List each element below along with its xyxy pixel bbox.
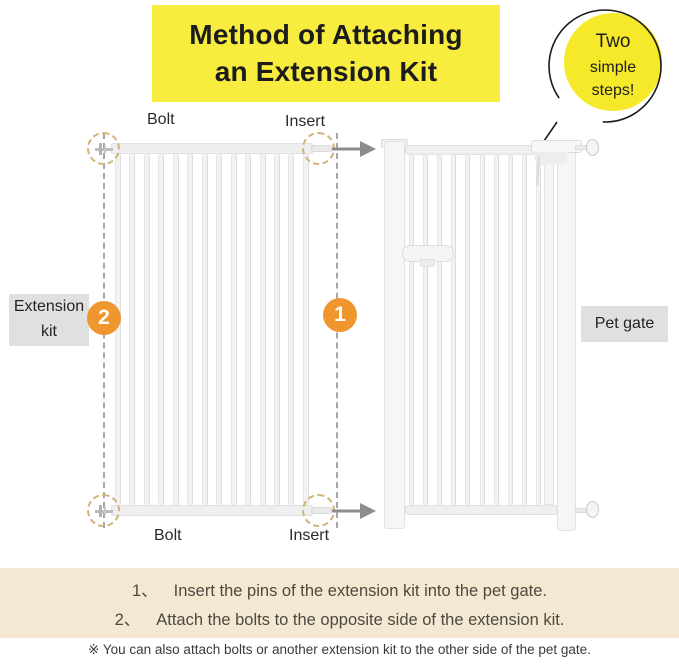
bottom-insert-arrow-icon [332,503,376,519]
page-title: Method of Attaching an Extension Kit [152,5,500,102]
extension-kit-bottom-rail [111,505,313,516]
extension-kit-top-rail [111,143,313,154]
bubble-line-3: steps! [592,79,635,102]
step-1-badge: 1 [323,298,357,332]
bottom-pressure-knob [586,501,599,518]
speech-bubble-text: Two simple steps! [557,14,669,116]
step-2-number: 2、 [115,606,141,630]
top-insert-highlight-circle [302,132,335,165]
top-insert-arrow-icon [332,141,376,157]
bottom-insert-highlight-circle [302,494,335,527]
extension-kit-label-line2: kit [41,320,57,345]
bolt-icon [95,142,113,156]
title-line-2: an Extension Kit [215,54,438,91]
extension-kit-label: Extension kit [9,294,89,346]
speech-bubble: Two simple steps! [543,0,679,152]
steps-band: 1、 Insert the pins of the extension kit … [0,568,679,638]
top-bolt-highlight-circle [87,132,120,165]
pet-gate-bottom-rail [405,505,557,515]
step-1-number: 1、 [132,577,158,601]
bolt-bottom-label: Bolt [154,527,182,545]
bottom-bolt-highlight-circle [87,494,120,527]
pet-gate-right-post [557,140,576,531]
pet-gate-label-text: Pet gate [595,312,655,337]
step-1-text: Insert the pins of the extension kit int… [174,582,547,601]
extension-kit-bars [115,154,309,505]
bolt-icon [95,504,113,518]
gate-hinge-lock-tab [420,259,435,267]
step-2-text: Attach the bolts to the opposite side of… [156,611,564,630]
pet-gate-left-post [384,141,405,529]
insert-top-label: Insert [285,113,325,131]
footnote: ※ You can also attach bolts or another e… [0,642,679,658]
step-1-row: 1、 Insert the pins of the extension kit … [132,577,547,601]
bolt-top-label: Bolt [147,111,175,129]
step-2-row: 2、 Attach the bolts to the opposite side… [115,606,565,630]
extension-kit-label-line1: Extension [14,295,84,320]
insert-bottom-label: Insert [289,527,329,545]
title-line-1: Method of Attaching [189,17,462,54]
pet-gate-label: Pet gate [581,306,668,342]
pet-gate-door-edge-bar [544,155,554,505]
bubble-line-1: Two [596,28,631,56]
pet-gate-bars [409,155,541,505]
instruction-graphic: Method of Attaching an Extension Kit Two… [0,0,679,664]
top-pressure-knob [586,139,599,156]
bubble-line-2: simple [590,56,636,79]
step-2-badge: 2 [87,301,121,335]
